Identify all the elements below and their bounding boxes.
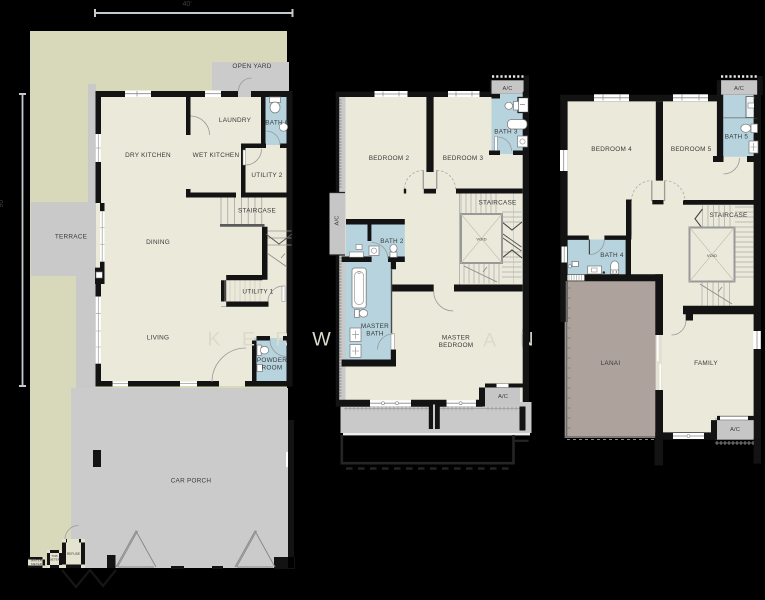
svg-text:E: E (242, 329, 255, 351)
svg-text:K: K (207, 329, 220, 351)
svg-text:A/C: A/C (498, 394, 508, 400)
svg-text:POWDER: POWDER (257, 357, 287, 364)
svg-text:MASTER: MASTER (361, 323, 389, 330)
svg-text:UTILITY 1: UTILITY 1 (242, 289, 273, 296)
svg-text:DRY KITCHEN: DRY KITCHEN (125, 152, 171, 159)
svg-text:A: A (483, 329, 497, 351)
svg-text:BATH: BATH (366, 331, 384, 338)
svg-text:A/C: A/C (335, 216, 341, 226)
svg-text:STAIRCASE: STAIRCASE (710, 212, 748, 219)
svg-text:BATH 6: BATH 6 (265, 120, 289, 127)
svg-text:40': 40' (182, 1, 191, 8)
svg-text:BEDROOM: BEDROOM (439, 342, 474, 349)
svg-text:BEDROOM 3: BEDROOM 3 (443, 155, 484, 162)
svg-text:REFUSE: REFUSE (67, 552, 81, 556)
svg-text:ROOM: ROOM (262, 365, 283, 372)
svg-text:LIVING: LIVING (147, 335, 169, 342)
svg-text:VOID: VOID (707, 253, 717, 258)
svg-text:LANAI: LANAI (601, 360, 621, 367)
svg-text:A/C: A/C (730, 427, 740, 433)
svg-text:BEDROOM 5: BEDROOM 5 (671, 146, 712, 153)
svg-text:BATH 5: BATH 5 (725, 134, 749, 141)
svg-text:A/C: A/C (734, 86, 744, 92)
svg-text:A/C: A/C (503, 86, 513, 92)
svg-text:90': 90' (0, 198, 5, 207)
svg-text:OPEN YARD: OPEN YARD (232, 63, 271, 70)
svg-text:UTILITY 2: UTILITY 2 (251, 172, 282, 179)
svg-text:W: W (312, 329, 331, 351)
svg-text:CAR PORCH: CAR PORCH (171, 478, 212, 485)
svg-text:BEDROOM 2: BEDROOM 2 (369, 155, 410, 162)
svg-text:BATH 4: BATH 4 (600, 252, 624, 259)
svg-text:FAMILY: FAMILY (694, 360, 718, 367)
svg-text:WET KITCHEN: WET KITCHEN (193, 152, 240, 159)
svg-text:LAUNDRY: LAUNDRY (219, 117, 252, 124)
svg-text:MASTER: MASTER (442, 335, 470, 342)
svg-text:METER: METER (31, 562, 43, 566)
svg-text:BATH 2: BATH 2 (380, 238, 404, 245)
svg-text:METER: METER (49, 558, 61, 562)
svg-text:STAIRCASE: STAIRCASE (238, 208, 276, 215)
svg-text:TERRACE: TERRACE (55, 234, 87, 241)
svg-text:DINING: DINING (146, 239, 170, 246)
svg-text:BATH 3: BATH 3 (494, 128, 518, 135)
svg-text:VOID: VOID (476, 237, 486, 242)
svg-text:STAIRCASE: STAIRCASE (479, 200, 517, 207)
svg-text:BEDROOM 4: BEDROOM 4 (591, 146, 632, 153)
